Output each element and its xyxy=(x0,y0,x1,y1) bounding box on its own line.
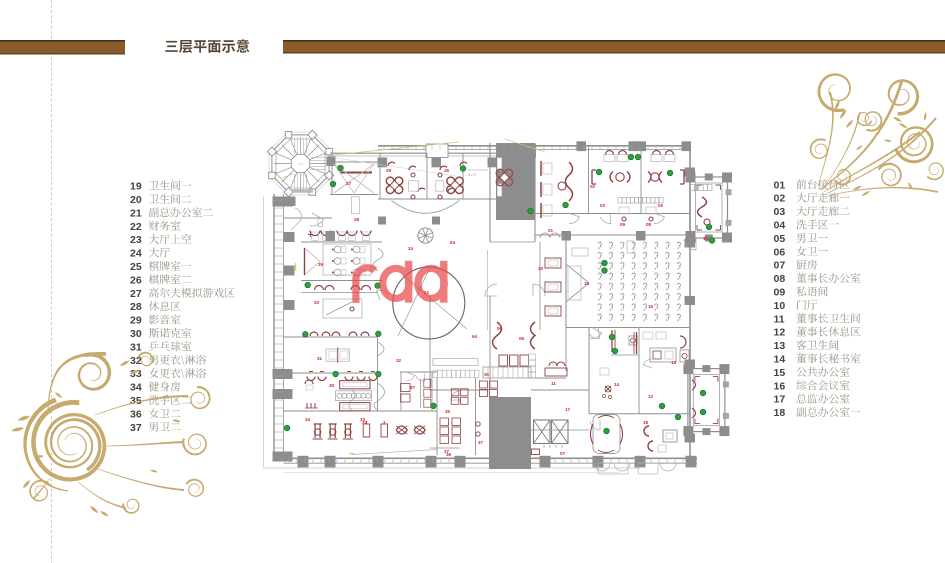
svg-text:32: 32 xyxy=(396,358,402,363)
svg-text:33: 33 xyxy=(314,300,320,305)
svg-text:26: 26 xyxy=(444,168,450,173)
svg-text:33: 33 xyxy=(362,420,368,425)
svg-text:12: 12 xyxy=(648,394,654,399)
svg-text:17: 17 xyxy=(565,407,571,412)
svg-text:10: 10 xyxy=(538,266,544,271)
svg-text:03: 03 xyxy=(774,206,786,218)
svg-text:13: 13 xyxy=(703,236,709,241)
svg-text:30: 30 xyxy=(130,328,142,340)
svg-text:64: 64 xyxy=(472,334,478,339)
svg-text:36: 36 xyxy=(130,408,142,420)
svg-text:04: 04 xyxy=(774,220,786,232)
svg-text:18: 18 xyxy=(774,407,786,419)
svg-text:26: 26 xyxy=(130,274,142,286)
svg-text:22: 22 xyxy=(130,221,142,233)
svg-text:29: 29 xyxy=(318,262,324,267)
svg-text:04: 04 xyxy=(450,240,456,245)
svg-text:13: 13 xyxy=(671,360,677,365)
svg-text:21: 21 xyxy=(130,207,142,219)
svg-text:07: 07 xyxy=(774,260,786,272)
svg-text:27: 27 xyxy=(130,288,142,300)
svg-text:31: 31 xyxy=(130,341,142,353)
svg-text:14: 14 xyxy=(614,382,620,387)
svg-text:08: 08 xyxy=(646,222,652,227)
svg-text:16: 16 xyxy=(774,380,786,392)
svg-text:05: 05 xyxy=(774,233,786,245)
svg-text:31: 31 xyxy=(317,356,323,361)
svg-text:11: 11 xyxy=(551,381,556,386)
svg-text:27: 27 xyxy=(346,181,352,186)
svg-text:14: 14 xyxy=(774,354,786,366)
svg-text:28: 28 xyxy=(130,301,142,313)
svg-text:11: 11 xyxy=(774,313,785,325)
svg-text:28: 28 xyxy=(354,217,360,222)
svg-text:35: 35 xyxy=(445,409,451,414)
svg-text:09: 09 xyxy=(620,222,626,227)
svg-text:15: 15 xyxy=(774,367,786,379)
svg-text:34: 34 xyxy=(130,382,142,394)
svg-text:25: 25 xyxy=(386,168,392,173)
svg-text:06: 06 xyxy=(497,326,503,331)
svg-text:06: 06 xyxy=(774,246,786,258)
svg-text:23: 23 xyxy=(130,234,142,246)
svg-text:12: 12 xyxy=(774,327,786,339)
svg-text:18: 18 xyxy=(643,420,649,425)
svg-text:34: 34 xyxy=(305,417,311,422)
svg-text:02: 02 xyxy=(774,193,786,205)
svg-text:15: 15 xyxy=(648,304,654,309)
svg-text:51.07: 51.07 xyxy=(468,173,477,177)
svg-text:25: 25 xyxy=(130,261,142,273)
svg-text:36: 36 xyxy=(446,452,452,457)
svg-text:19: 19 xyxy=(130,181,142,193)
svg-text:10: 10 xyxy=(774,300,786,312)
svg-text:20: 20 xyxy=(130,194,142,206)
svg-text:03: 03 xyxy=(600,203,606,208)
svg-text:32: 32 xyxy=(130,355,142,367)
svg-text:02: 02 xyxy=(590,184,596,189)
svg-text:33: 33 xyxy=(130,368,142,380)
svg-text:24: 24 xyxy=(408,246,414,251)
svg-text:05: 05 xyxy=(519,336,525,341)
svg-text:08: 08 xyxy=(774,273,786,285)
svg-text:17: 17 xyxy=(774,394,786,406)
svg-text:01: 01 xyxy=(774,179,786,191)
svg-text:87: 87 xyxy=(410,385,416,390)
svg-text:16: 16 xyxy=(584,281,590,286)
svg-text:36: 36 xyxy=(484,372,490,377)
svg-text:37: 37 xyxy=(478,440,484,445)
svg-text:01: 01 xyxy=(548,228,554,233)
svg-text:07: 07 xyxy=(560,451,566,456)
svg-text:29: 29 xyxy=(130,315,142,327)
svg-text:02: 02 xyxy=(658,203,664,208)
svg-text:37: 37 xyxy=(130,422,142,434)
svg-text:13: 13 xyxy=(774,340,786,352)
svg-text:09: 09 xyxy=(774,287,786,299)
svg-text:30: 30 xyxy=(329,383,335,388)
svg-text:24: 24 xyxy=(130,248,142,260)
